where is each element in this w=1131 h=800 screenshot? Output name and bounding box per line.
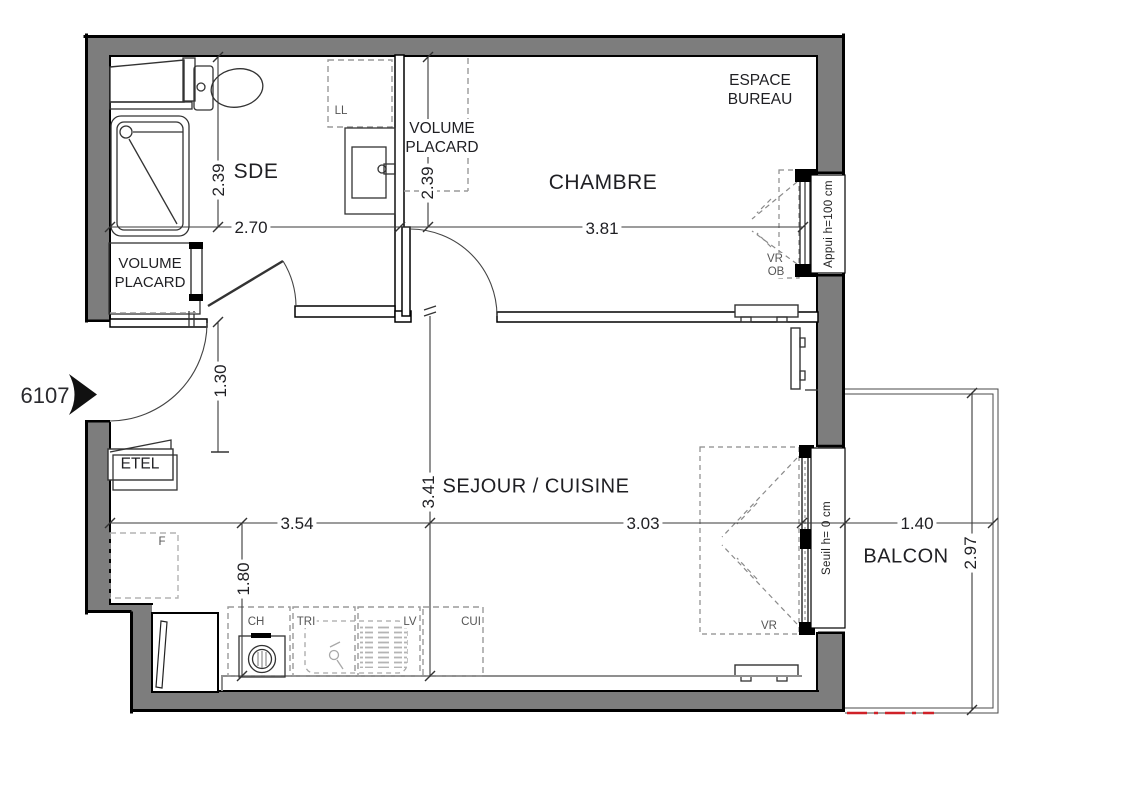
bathroom-vanity xyxy=(110,60,192,109)
window-vr-label: VR xyxy=(766,253,784,265)
sejour-radiator-right xyxy=(791,328,805,389)
espace-bureau-label: ESPACE BUREAU xyxy=(728,71,793,109)
entry-door xyxy=(110,311,207,421)
dim-sde-depth: 2.39 xyxy=(210,160,228,199)
dimension-lines xyxy=(105,52,998,715)
dim-balcon-width: 1.40 xyxy=(897,515,936,533)
dim-kitchen-depth: 1.80 xyxy=(235,559,253,598)
dishwasher-grille xyxy=(360,624,407,668)
dishwasher-label: LV xyxy=(402,616,417,628)
water-heater xyxy=(239,633,285,677)
chambre-door xyxy=(402,227,497,316)
dim-sejour-width-left: 3.54 xyxy=(277,515,316,533)
sde-door xyxy=(208,261,296,306)
toilet xyxy=(183,58,266,111)
room-label-balcon: BALCON xyxy=(863,546,948,569)
shower xyxy=(111,116,189,236)
washing-machine-label: LL xyxy=(334,105,349,117)
kitchen-sink xyxy=(305,621,407,673)
dim-placard-depth: 2.39 xyxy=(419,163,437,202)
dim-chambre-width: 3.81 xyxy=(582,220,621,238)
fridge-zone xyxy=(110,533,178,598)
room-label-sejour-cuisine: SEJOUR / CUISINE xyxy=(443,476,630,499)
espace-bureau-line1: ESPACE xyxy=(728,71,793,90)
volume-placard-line2: PLACARD xyxy=(115,273,186,292)
unit-arrow-icon xyxy=(69,374,97,415)
sejour-radiator-bottom xyxy=(735,665,798,681)
kitchen-counter xyxy=(222,676,802,691)
window-ob-label: OB xyxy=(767,266,786,278)
fridge-label: F xyxy=(157,536,166,548)
etel-label: ETEL xyxy=(121,455,160,474)
espace-bureau-line2: BUREAU xyxy=(728,90,793,109)
sorting-bin-label: TRI xyxy=(296,616,317,628)
dim-sde-width: 2.70 xyxy=(231,219,270,237)
cooker-label: CUI xyxy=(460,616,482,628)
floor-plan: 6107 SDE CHAMBRE SEJOUR / CUISINE BALCON… xyxy=(0,0,1131,800)
volume-placard-chambre-label: VOLUME PLACARD xyxy=(405,119,478,157)
washbasin xyxy=(345,128,395,214)
unit-number: 6107 xyxy=(21,383,70,409)
floor-plan-canvas xyxy=(0,0,1131,800)
room-label-chambre: CHAMBRE xyxy=(549,171,658,195)
water-heater-label: CH xyxy=(247,616,266,628)
dim-sejour-width-right: 3.03 xyxy=(623,515,662,533)
entry-niche xyxy=(152,613,218,692)
balcony-door-vr-label: VR xyxy=(760,620,778,632)
volume-placard-sde-label: VOLUME PLACARD xyxy=(115,254,186,292)
dim-entry-width: 1.30 xyxy=(212,361,230,400)
volume-placard-line2: PLACARD xyxy=(405,138,478,157)
window-sill-note: Appui h=100 cm xyxy=(823,180,835,268)
volume-placard-line1: VOLUME xyxy=(115,254,186,273)
dim-balcon-depth: 2.97 xyxy=(962,533,980,572)
balcony-threshold-note: Seuil h= 0 cm xyxy=(821,501,833,575)
room-label-sde: SDE xyxy=(234,160,279,184)
dim-sejour-depth: 3.41 xyxy=(420,472,438,511)
volume-placard-line1: VOLUME xyxy=(405,119,478,138)
